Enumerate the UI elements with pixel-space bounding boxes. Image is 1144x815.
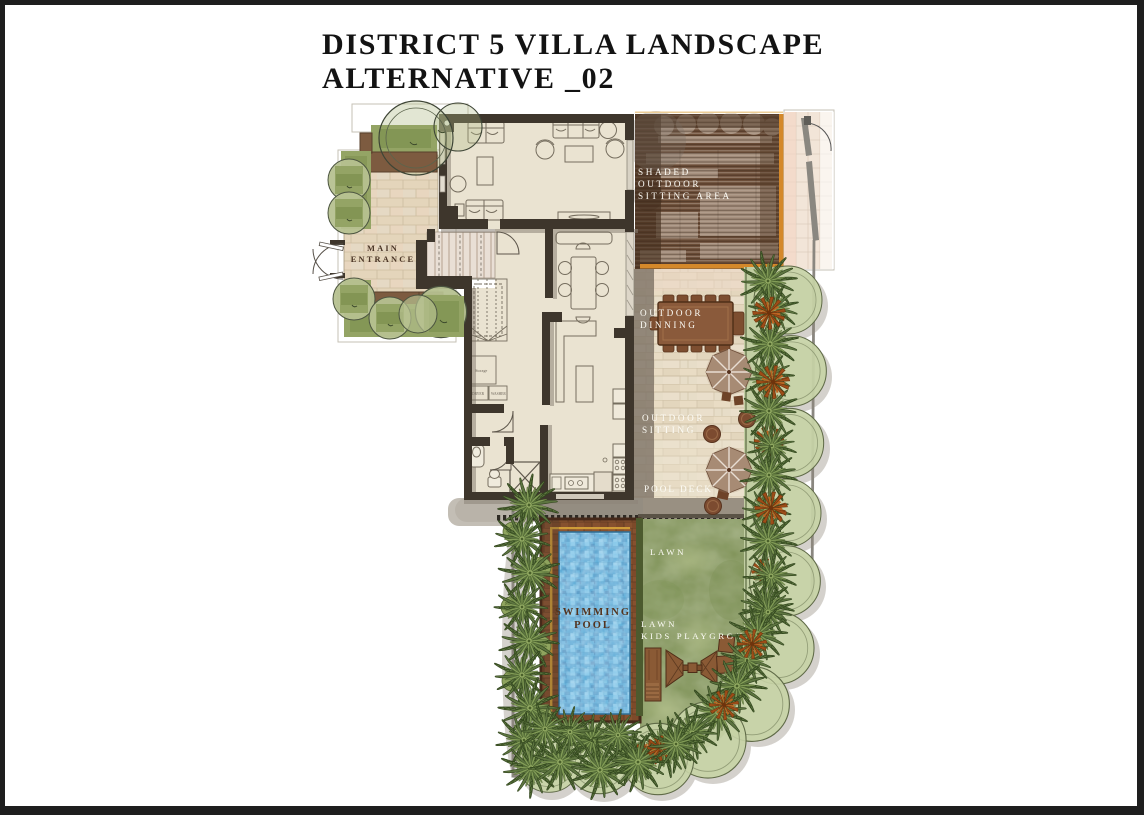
svg-text:WASHER: WASHER — [491, 392, 506, 396]
svg-text:POOL DECK: POOL DECK — [644, 484, 713, 494]
svg-text:OUTDOOR: OUTDOOR — [638, 179, 701, 189]
svg-text:ENTRANCE: ENTRANCE — [351, 255, 416, 264]
svg-text:Storage: Storage — [475, 368, 487, 373]
svg-text:LAWN: LAWN — [641, 619, 677, 629]
svg-text:DISTRICT 5 VILLA LANDSCAPE: DISTRICT 5 VILLA LANDSCAPE — [322, 28, 824, 61]
svg-text:MAIN: MAIN — [367, 244, 399, 253]
svg-text:SITTING AREA: SITTING AREA — [638, 191, 732, 201]
svg-text:LAWN: LAWN — [650, 547, 686, 557]
svg-text:SHADED: SHADED — [638, 167, 691, 177]
svg-text:POOL: POOL — [574, 620, 612, 631]
svg-text:ALTERNATIVE _02: ALTERNATIVE _02 — [322, 62, 615, 95]
svg-text:DINNING: DINNING — [640, 320, 698, 330]
svg-text:SITTING: SITTING — [642, 425, 696, 435]
svg-text:SWIMMING: SWIMMING — [555, 607, 631, 618]
svg-text:OUTDOOR: OUTDOOR — [640, 308, 703, 318]
svg-text:DRYER: DRYER — [472, 392, 485, 396]
svg-text:OUTDOOR: OUTDOOR — [642, 413, 705, 423]
